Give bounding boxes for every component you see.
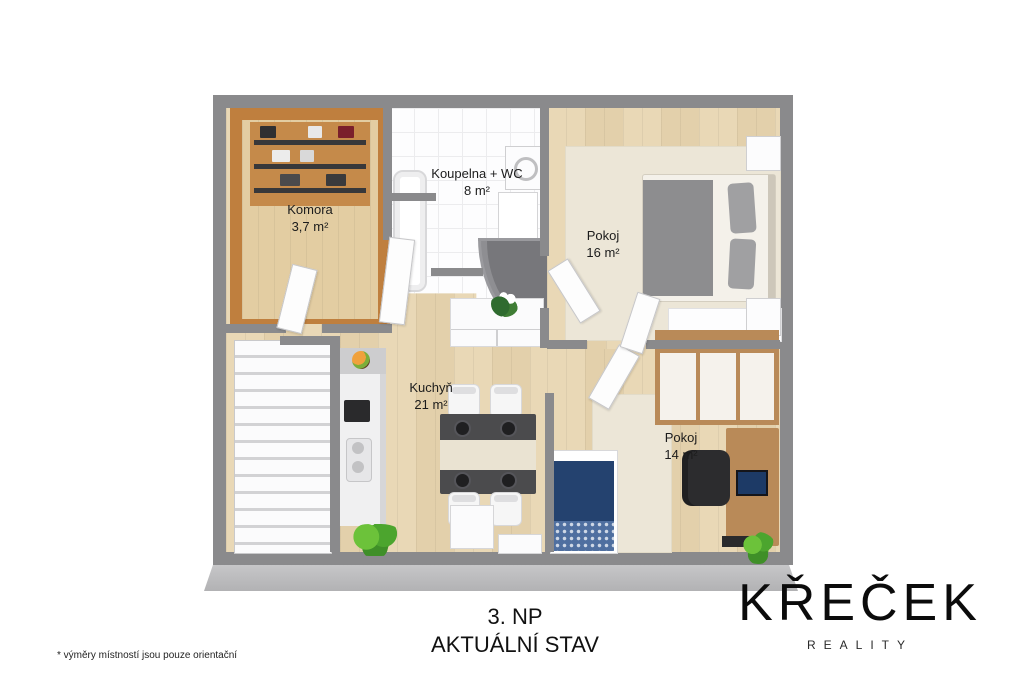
floor-label: 3. NP bbox=[385, 603, 645, 631]
wall bbox=[280, 336, 330, 345]
potted-plant bbox=[346, 524, 404, 556]
dining-chair bbox=[490, 492, 522, 526]
status-label: AKTUÁLNÍ STAV bbox=[385, 631, 645, 659]
laptop bbox=[736, 470, 768, 496]
potted-plant bbox=[740, 532, 776, 564]
room-name: Kuchyň bbox=[376, 380, 486, 397]
dresser bbox=[498, 534, 542, 554]
room-area: 16 m² bbox=[548, 245, 658, 262]
table-runner bbox=[440, 440, 536, 470]
room-name: Pokoj bbox=[626, 430, 736, 447]
single-bed bbox=[550, 450, 618, 554]
kitchen-sink bbox=[346, 438, 372, 482]
room-area: 14 m² bbox=[626, 447, 736, 464]
double-bed bbox=[642, 174, 776, 302]
wall bbox=[383, 108, 392, 240]
kitchen-counter-top bbox=[338, 348, 386, 374]
hall-sideboard bbox=[450, 298, 544, 347]
dining-chair bbox=[490, 384, 522, 418]
room-name: Koupelna + WC bbox=[412, 166, 542, 183]
cooktop bbox=[344, 400, 370, 422]
front-wall-face bbox=[204, 565, 798, 591]
nightstand bbox=[746, 136, 781, 171]
wall bbox=[330, 336, 340, 552]
floor-plan-page: Komora 3,7 m² Koupelna + WC 8 m² Pokoj 1… bbox=[0, 0, 1024, 684]
room-label-pokoj14: Pokoj 14 m² bbox=[626, 430, 736, 464]
dresser bbox=[450, 505, 494, 549]
wall bbox=[431, 268, 483, 276]
wall bbox=[547, 340, 587, 349]
dining-table bbox=[440, 414, 536, 494]
plate bbox=[454, 472, 471, 489]
plate bbox=[500, 420, 517, 437]
plan-caption: 3. NP AKTUÁLNÍ STAV bbox=[385, 603, 645, 658]
room-label-komora: Komora 3,7 m² bbox=[254, 202, 366, 236]
bathroom-vanity bbox=[498, 192, 538, 244]
room-name: Komora bbox=[254, 202, 366, 219]
brand-subtitle: REALITY bbox=[725, 638, 995, 652]
brand-logo: KŘEČEK REALITY bbox=[725, 575, 995, 652]
plate bbox=[500, 472, 517, 489]
storage-shelving bbox=[250, 122, 370, 206]
fruit-bowl bbox=[352, 351, 370, 369]
plate bbox=[454, 420, 471, 437]
room-area: 8 m² bbox=[412, 183, 542, 200]
room-label-pokoj16: Pokoj 16 m² bbox=[548, 228, 658, 262]
flower-vase bbox=[491, 291, 519, 317]
wall bbox=[545, 393, 554, 552]
brand-name: KŘEČEK bbox=[725, 575, 995, 632]
wall bbox=[322, 324, 392, 333]
room-label-koupelna: Koupelna + WC 8 m² bbox=[412, 166, 542, 200]
floor-plan: Komora 3,7 m² Koupelna + WC 8 m² Pokoj 1… bbox=[213, 95, 793, 565]
staircase bbox=[234, 340, 332, 554]
disclaimer-note: * výměry místností jsou pouze orientační bbox=[57, 650, 237, 661]
room-area: 21 m² bbox=[376, 397, 486, 414]
room-name: Pokoj bbox=[548, 228, 658, 245]
wall bbox=[646, 340, 780, 349]
room-label-kuchyn: Kuchyň 21 m² bbox=[376, 380, 486, 414]
room-area: 3,7 m² bbox=[254, 219, 366, 236]
